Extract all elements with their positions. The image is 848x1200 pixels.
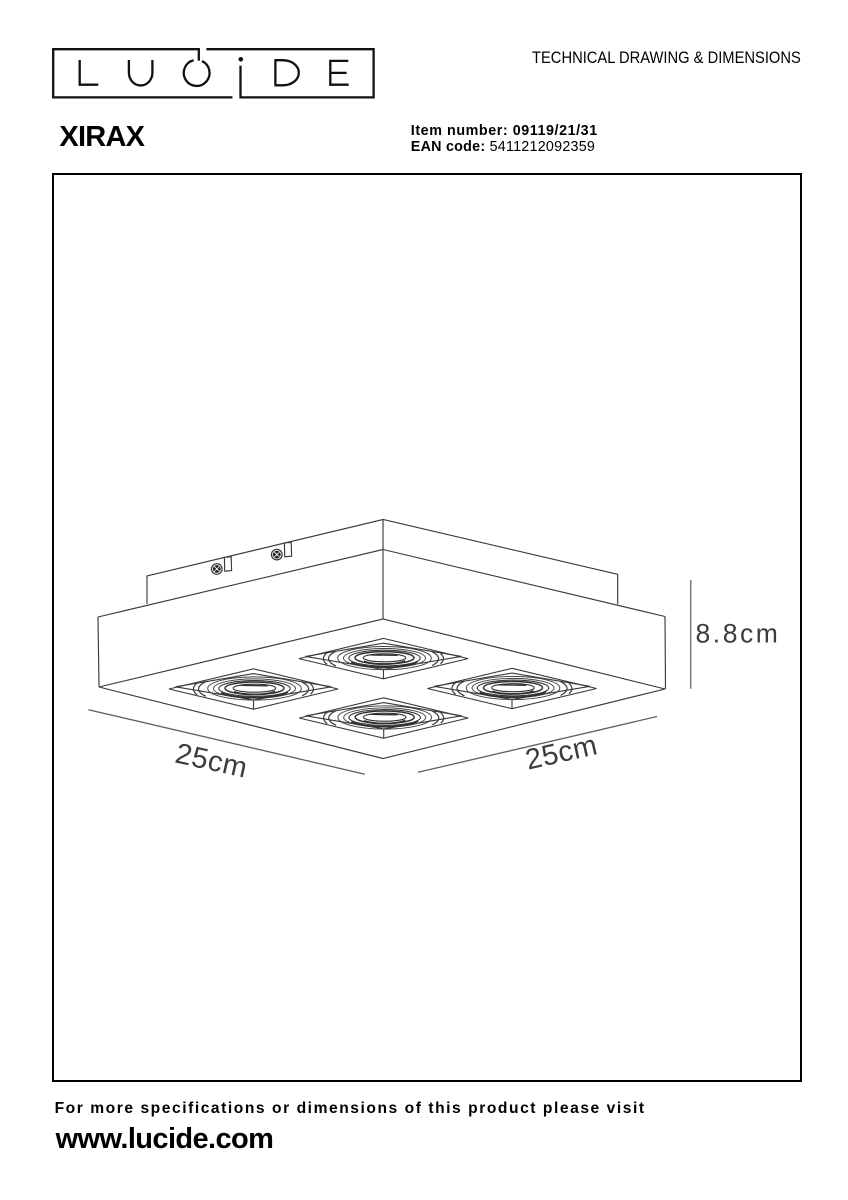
svg-text:25cm: 25cm (522, 729, 600, 776)
svg-text:8.8cm: 8.8cm (696, 619, 781, 649)
